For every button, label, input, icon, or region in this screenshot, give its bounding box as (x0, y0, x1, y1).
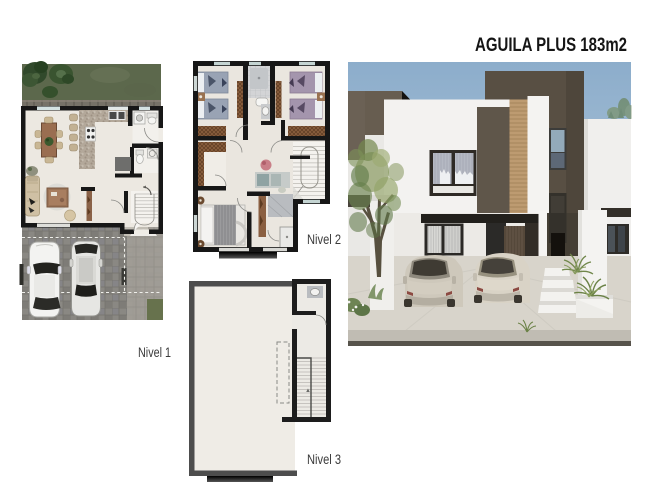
svg-text:Nivel 2: Nivel 2 (307, 232, 341, 247)
svg-text:Nivel 1: Nivel 1 (138, 345, 171, 360)
svg-text:AGUILA PLUS 183m2: AGUILA PLUS 183m2 (475, 35, 627, 56)
svg-text:▲: ▲ (305, 388, 311, 394)
svg-text:Nivel 3: Nivel 3 (307, 452, 341, 467)
